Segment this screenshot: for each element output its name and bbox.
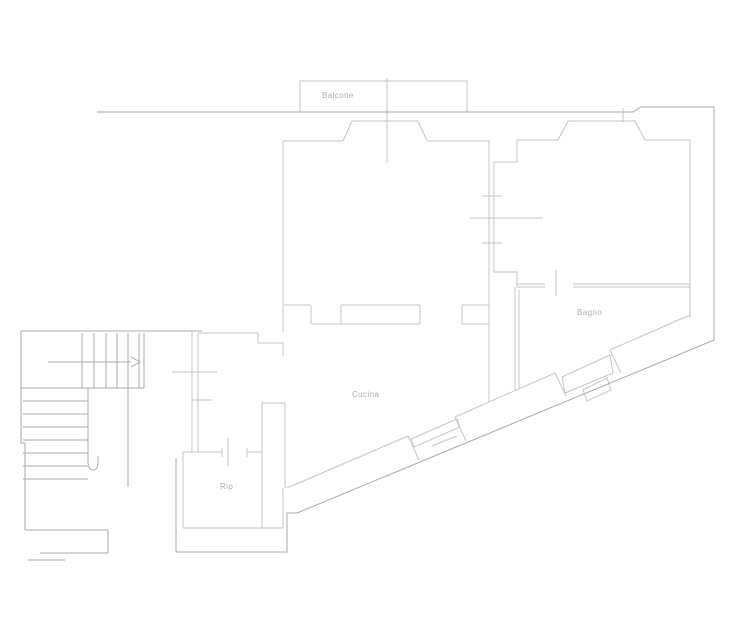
stair-block-outline (21, 331, 202, 560)
column-walls (262, 403, 285, 488)
floor-plan-drawing: Balcone Cucina Bagno Rip (0, 0, 748, 626)
balcony-door-bedroom (558, 121, 645, 140)
bathroom-walls (515, 287, 519, 390)
living-bedroom-wall (470, 140, 543, 287)
stair-handrail (88, 388, 98, 470)
hall-walls (172, 331, 283, 452)
room-label-bagno: Bagno (577, 308, 602, 317)
interior-walls (172, 78, 690, 552)
room-label-cucina: Cucina (352, 390, 379, 399)
balcony-door-living (343, 121, 427, 141)
room-label-balcone: Balcone (322, 91, 354, 100)
storage-walls (176, 438, 283, 552)
floor-plan-page: Balcone Cucina Bagno Rip (0, 0, 748, 626)
room-labels: Balcone Cucina Bagno Rip (220, 91, 602, 491)
stair-treads (21, 333, 144, 479)
boundary-and-stairs (21, 107, 714, 560)
bathroom-diagonal-door (555, 350, 621, 401)
bedroom-walls (517, 108, 690, 318)
living-room-bottom-wall (284, 305, 489, 324)
living-room-walls (283, 141, 489, 402)
room-label-rip: Rip (220, 482, 233, 491)
site-boundary (97, 107, 714, 552)
kitchen-diagonal-door (408, 417, 466, 460)
